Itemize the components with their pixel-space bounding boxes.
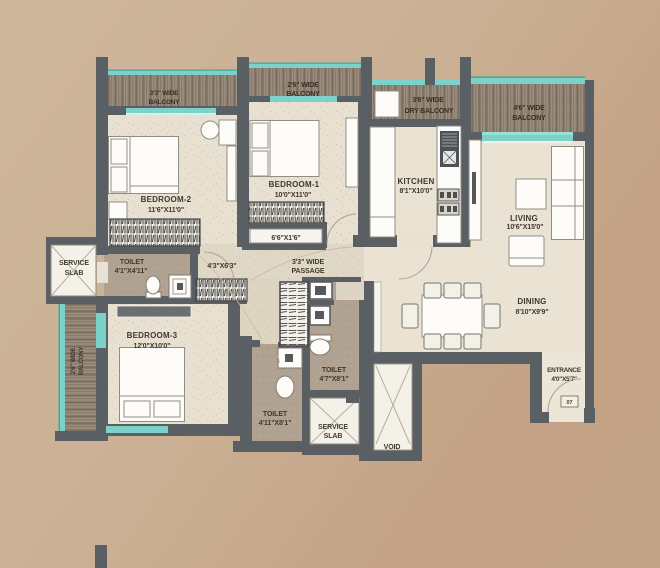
svg-text:BALCONY: BALCONY bbox=[512, 115, 546, 122]
svg-text:DINING: DINING bbox=[517, 297, 546, 306]
svg-text:SERVICE: SERVICE bbox=[59, 260, 89, 267]
svg-text:8'1"X10'0": 8'1"X10'0" bbox=[399, 188, 432, 195]
svg-text:DRY BALCONY: DRY BALCONY bbox=[405, 108, 454, 115]
svg-text:4'1"X4'11": 4'1"X4'11" bbox=[115, 268, 148, 275]
svg-text:3'3" WIDE: 3'3" WIDE bbox=[150, 90, 180, 97]
svg-text:6'6"X1'6": 6'6"X1'6" bbox=[271, 235, 300, 242]
svg-text:SLAB: SLAB bbox=[324, 433, 343, 440]
svg-text:3'3" WIDE: 3'3" WIDE bbox=[292, 259, 325, 266]
svg-text:KITCHEN: KITCHEN bbox=[398, 177, 435, 186]
svg-text:SERVICE: SERVICE bbox=[318, 424, 348, 431]
svg-text:SLAB: SLAB bbox=[65, 270, 84, 277]
svg-text:4'0"X5'7": 4'0"X5'7" bbox=[551, 376, 577, 383]
svg-text:VOID: VOID bbox=[384, 444, 401, 451]
svg-text:4'11"X8'1": 4'11"X8'1" bbox=[259, 420, 292, 427]
svg-text:BALCONY: BALCONY bbox=[79, 347, 85, 375]
svg-text:LIVING: LIVING bbox=[510, 214, 538, 223]
svg-text:4'3"X6'3": 4'3"X6'3" bbox=[207, 263, 236, 270]
svg-text:3'6" WIDE: 3'6" WIDE bbox=[412, 97, 444, 104]
svg-text:BEDROOM-1: BEDROOM-1 bbox=[269, 180, 320, 189]
svg-text:10'6"X15'0": 10'6"X15'0" bbox=[507, 224, 544, 231]
svg-text:8'10"X9'9": 8'10"X9'9" bbox=[515, 309, 548, 316]
svg-text:2'6" WIDE: 2'6" WIDE bbox=[71, 348, 77, 375]
svg-text:12'0"X10'0": 12'0"X10'0" bbox=[134, 343, 171, 350]
svg-text:4'6" WIDE: 4'6" WIDE bbox=[513, 105, 545, 112]
svg-text:BEDROOM-3: BEDROOM-3 bbox=[127, 331, 178, 340]
svg-text:TOILET: TOILET bbox=[322, 367, 347, 374]
svg-text:2'6" WIDE: 2'6" WIDE bbox=[287, 82, 319, 89]
svg-text:TOILET: TOILET bbox=[263, 411, 288, 418]
svg-text:ENTRANCE: ENTRANCE bbox=[547, 367, 582, 374]
svg-text:BALCONY: BALCONY bbox=[149, 99, 181, 106]
svg-text:BEDROOM-2: BEDROOM-2 bbox=[141, 195, 192, 204]
svg-text:BALCONY: BALCONY bbox=[286, 91, 320, 98]
svg-text:07: 07 bbox=[566, 400, 572, 406]
svg-text:4'7"X8'1": 4'7"X8'1" bbox=[319, 376, 348, 383]
svg-text:10'0"X11'0": 10'0"X11'0" bbox=[275, 192, 312, 199]
svg-text:PASSAGE: PASSAGE bbox=[291, 268, 324, 275]
svg-text:11'6"X11'0": 11'6"X11'0" bbox=[148, 207, 184, 214]
svg-text:TOILET: TOILET bbox=[120, 259, 145, 266]
